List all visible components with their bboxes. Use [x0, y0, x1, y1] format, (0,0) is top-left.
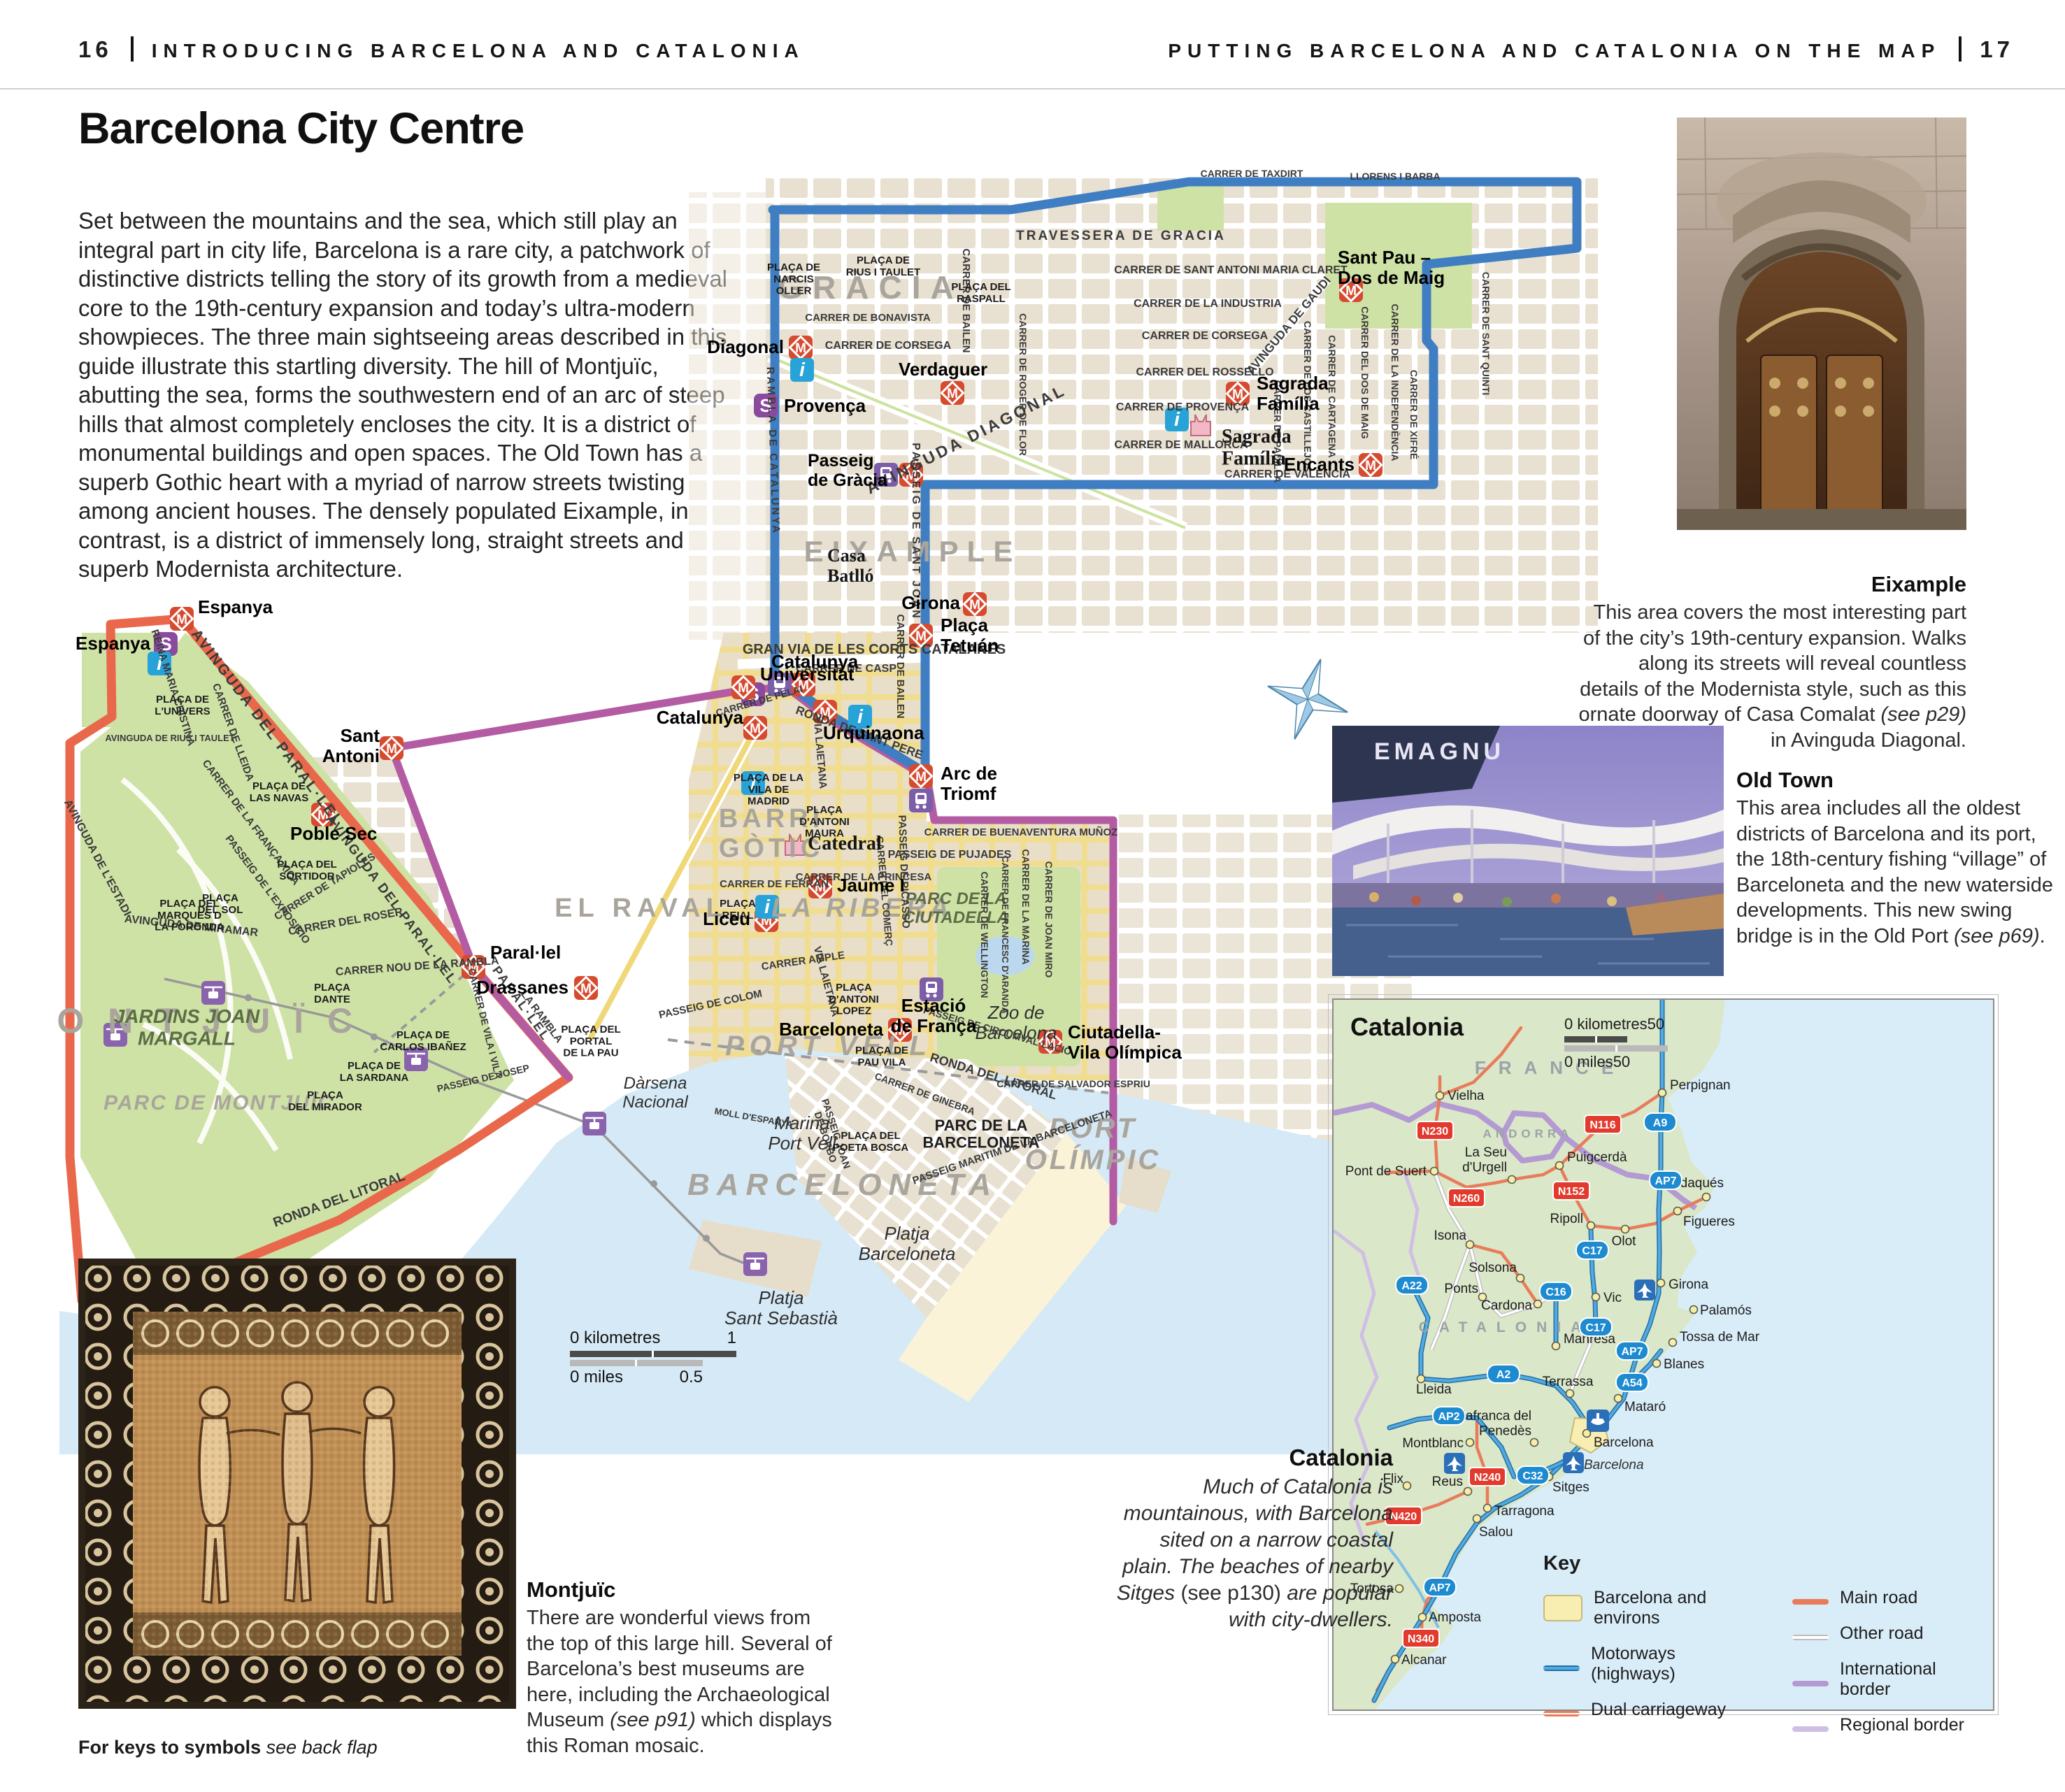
map-label: Puigcerdà	[1567, 1150, 1627, 1165]
road-shield: N240	[1469, 1468, 1506, 1486]
header-divider	[1959, 36, 1962, 62]
map-label: Espanya	[76, 633, 150, 654]
map-label: Tossa de Mar	[1680, 1330, 1760, 1345]
map-label: CARRER DE PROVENÇA	[1116, 401, 1250, 413]
city-map-scale: 0 kilometres1 0 miles0.5	[570, 1328, 736, 1387]
city-dot	[1419, 1614, 1427, 1621]
small-park	[1157, 185, 1224, 231]
map-label: Drassanes	[476, 977, 569, 998]
metro-icon	[170, 607, 194, 631]
page-number-left: 16	[78, 36, 113, 62]
catalonia-map-title: Catalonia	[1350, 1012, 1464, 1042]
city-dot	[1552, 1342, 1560, 1350]
map-label: CARRER DE SANT ANTONI MARIA CLARET	[1114, 264, 1348, 276]
header-title-left: INTRODUCING BARCELONA AND CATALONIA	[152, 40, 805, 62]
map-label: Olot	[1612, 1234, 1637, 1249]
map-label: CARRER DE XIFRÉ	[1408, 370, 1420, 459]
map-label: Provença	[784, 395, 866, 416]
cable-icon	[583, 1112, 606, 1135]
cat-scale-km-val: 50	[1648, 1015, 1664, 1033]
svg-text:A22: A22	[1401, 1280, 1422, 1292]
key-label: Regional border	[1840, 1715, 1964, 1735]
map-label: Girona	[901, 592, 960, 613]
key-swatch	[1792, 1681, 1829, 1686]
map-label: CARRER DE BONAVISTA	[805, 312, 931, 324]
metro-icon	[574, 976, 598, 1000]
page-title: Barcelona City Centre	[78, 103, 524, 154]
svg-text:C16: C16	[1545, 1286, 1566, 1298]
city-dot	[1674, 1207, 1682, 1215]
montjuic-heading: Montjuïc	[527, 1577, 834, 1603]
city-dot	[1659, 1089, 1666, 1097]
catalonia-caption: Catalonia Much of Catalonia is mountaino…	[1110, 1445, 1393, 1633]
page-header-right: PUTTING BARCELONA AND CATALONIA ON THE M…	[1168, 36, 2014, 67]
map-label: Diagonal	[707, 336, 784, 357]
map-label: Liceu	[703, 908, 750, 929]
old-town-photo: EMAGNU	[1332, 726, 1724, 976]
catalonia-scale: 0 kilometres50 0 miles50	[1564, 1015, 1669, 1071]
header-title-right: PUTTING BARCELONA AND CATALONIA ON THE M…	[1168, 40, 1941, 62]
map-label: Montblanc	[1402, 1436, 1464, 1451]
metro-icon	[909, 764, 933, 788]
old-town-page-ref: (see p69)	[1954, 925, 2040, 947]
scale-km-label: 0 kilometres	[570, 1328, 660, 1348]
key-title: Key	[1543, 1552, 1980, 1575]
map-label: CARRER DE FERRAN	[720, 878, 829, 890]
svg-text:C17: C17	[1585, 1322, 1606, 1334]
city-dot	[1417, 1375, 1425, 1383]
svg-text:N116: N116	[1589, 1119, 1615, 1131]
road-shield: N152	[1553, 1182, 1589, 1200]
map-label: Alcanar	[1401, 1653, 1447, 1668]
city-dot	[1587, 1222, 1595, 1230]
road-shield: AP2	[1433, 1407, 1465, 1425]
map-label: Isona	[1434, 1228, 1467, 1243]
road-shield: C16	[1540, 1282, 1572, 1300]
road-shield: A54	[1616, 1373, 1648, 1391]
map-label: CARRER DEL DOS DE MAIG	[1359, 306, 1371, 439]
airport-icon	[1634, 1280, 1655, 1300]
map-label: CARRER DE LA INDUSTRIA	[1134, 298, 1282, 310]
scale-mi-value: 0.5	[680, 1368, 703, 1387]
catalonia-map: FRANCEANDORRACATALONIAVielhaPont de Suer…	[1332, 998, 1994, 1711]
road-shield: C17	[1580, 1318, 1612, 1336]
maremagnum-sign: EMAGNU	[1374, 738, 1505, 765]
map-label: Sitges	[1552, 1480, 1589, 1495]
city-dot	[1690, 1306, 1698, 1314]
metro-icon	[380, 736, 403, 760]
key-swatch	[1792, 1599, 1829, 1605]
city-dot	[1436, 1092, 1444, 1100]
map-key: Key Barcelona and environsMotorways (hig…	[1543, 1552, 1980, 1735]
city-dot	[1392, 1656, 1399, 1663]
key-swatch	[1543, 1711, 1580, 1716]
cat-scale-mi: 0 miles	[1564, 1053, 1613, 1070]
header-rule	[0, 88, 2065, 89]
svg-text:AP2: AP2	[1438, 1411, 1459, 1423]
catalonia-heading: Catalonia	[1110, 1445, 1393, 1471]
road-shield: N230	[1417, 1121, 1453, 1140]
map-label: PLAÇA DEL'UNIVERS	[155, 694, 210, 717]
svg-text:N152: N152	[1558, 1186, 1585, 1198]
city-dot	[1484, 1505, 1492, 1512]
header-divider	[131, 36, 134, 62]
road-shield: N116	[1585, 1115, 1621, 1133]
map-label: Vic	[1603, 1291, 1622, 1305]
city-dot	[1615, 1395, 1622, 1403]
airport-icon	[1563, 1452, 1584, 1473]
map-label: La Seud'Urgell	[1462, 1145, 1507, 1175]
city-dot	[1534, 1300, 1542, 1308]
map-label: Lleida	[1416, 1382, 1452, 1397]
road-shield: N260	[1448, 1189, 1485, 1207]
map-label: CARRER DE ROGER DE FLOR	[1017, 313, 1029, 456]
key-swatch	[1543, 1665, 1580, 1671]
cat-scale-mi-val: 50	[1613, 1053, 1630, 1070]
city-dot	[1657, 1280, 1665, 1287]
eixample-doorway-photo	[1677, 117, 1966, 530]
map-label: Paral·lel	[490, 942, 561, 963]
map-label: Ponts	[1444, 1282, 1478, 1296]
city-dot	[1517, 1275, 1524, 1282]
map-label: CARRER DE LA INDEPENDÈNCIA	[1389, 303, 1401, 461]
road-shield: C17	[1576, 1241, 1608, 1259]
svg-text:C17: C17	[1582, 1245, 1602, 1257]
key-item: Other road	[1792, 1623, 1980, 1644]
map-label: PLAÇA DELA SARDANA	[340, 1060, 409, 1084]
svg-text:AP7: AP7	[1429, 1582, 1450, 1594]
map-label: Perpignan	[1670, 1078, 1731, 1093]
key-label: Dual carriageway	[1591, 1700, 1726, 1720]
map-label: Girona	[1669, 1277, 1708, 1292]
map-label: PLAÇA DELPORTALDE LA PAU	[561, 1024, 620, 1059]
map-label: CARRER DE BUENAVENTURA MUÑOZ	[924, 826, 1118, 838]
footer-note: For keys to symbols see back flap	[78, 1737, 378, 1758]
map-label: PLAÇA DELSORTIDOR	[277, 859, 336, 882]
svg-text:N340: N340	[1408, 1633, 1434, 1645]
scale-mi-label: 0 miles	[570, 1368, 623, 1387]
road-shield: C32	[1517, 1466, 1549, 1484]
map-label: ANDORRA	[1483, 1127, 1573, 1140]
book-page: 16INTRODUCING BARCELONA AND CATALONIA PU…	[0, 0, 2065, 1792]
montjuic-page-ref: (see p91)	[610, 1709, 696, 1731]
map-label: PLAÇADEL SOL	[198, 892, 243, 916]
key-swatch	[1792, 1726, 1829, 1732]
map-label: EL RAVAL	[555, 894, 728, 923]
train-icon	[909, 789, 933, 812]
key-column-left: Barcelona and environsMotorways (highway…	[1543, 1588, 1764, 1735]
key-swatch	[1792, 1635, 1829, 1640]
city-dot	[1508, 1176, 1516, 1184]
svg-text:C32: C32	[1522, 1470, 1543, 1482]
svg-text:AP7: AP7	[1621, 1346, 1643, 1358]
map-label: CARRER DE CORSEGA	[1142, 330, 1269, 342]
key-item: International border	[1792, 1659, 1980, 1700]
map-label: Pont de Suert	[1345, 1164, 1427, 1179]
map-label: PLAÇA DELRASPALL	[951, 281, 1010, 305]
city-dot	[1431, 1168, 1438, 1175]
map-label: Cardona	[1481, 1298, 1532, 1313]
map-label: PLAÇA DERIUS I TAULET	[846, 255, 920, 278]
cable-icon	[743, 1252, 767, 1276]
key-item: Motorways (highways)	[1543, 1644, 1764, 1684]
montjuic-mosaic-photo	[78, 1259, 516, 1709]
svg-text:N240: N240	[1474, 1472, 1501, 1484]
key-item: Main road	[1792, 1588, 1980, 1608]
map-label: AVINGUDA DE RIUS I TAULET	[105, 733, 234, 743]
key-item: Dual carriageway	[1543, 1700, 1764, 1720]
metro-icon	[743, 716, 767, 740]
road-shield: A2	[1487, 1365, 1520, 1383]
map-label: CARRER DE CARTAGENA	[1327, 335, 1338, 458]
key-label: International border	[1840, 1659, 1980, 1700]
map-label: CARRER DE WELLINGTON	[979, 872, 990, 998]
svg-text:A9: A9	[1653, 1117, 1668, 1129]
map-label: SagradaFamília	[1257, 373, 1329, 414]
ferry-icon	[1587, 1410, 1609, 1432]
key-swatch	[1543, 1595, 1582, 1621]
map-label: PLAÇADANTE	[314, 982, 350, 1005]
svg-text:N420: N420	[1390, 1511, 1417, 1523]
old-town-caption: Old Town This area includes all the olde…	[1736, 768, 2059, 949]
map-label: Universitat	[760, 664, 855, 684]
map-label: CARRER DE TAXDIRT	[1201, 168, 1303, 179]
map-label: Estacióde França	[891, 995, 977, 1036]
key-column-right: Main roadOther roadInternational borderR…	[1792, 1588, 1980, 1735]
map-label: CARRER DE BAILEN	[894, 614, 906, 718]
city-dot	[1592, 1293, 1600, 1301]
svg-text:AP7: AP7	[1655, 1175, 1676, 1187]
eixample-page-ref: (see p29)	[1880, 703, 1966, 726]
city-dot	[1466, 1241, 1474, 1249]
map-label: CARRER DE SALVADOR ESPRIU	[996, 1078, 1150, 1089]
map-label: Figueres	[1683, 1214, 1735, 1229]
map-label: CARRER DE CORSEGA	[825, 340, 952, 352]
map-label: Barceloneta	[779, 1019, 883, 1040]
airport-icon	[1444, 1453, 1465, 1474]
metro-icon	[963, 592, 987, 616]
map-label: Vielha	[1448, 1089, 1485, 1103]
scale-km-value: 1	[727, 1328, 736, 1348]
city-dot	[1396, 1585, 1403, 1593]
city-dot	[1473, 1515, 1481, 1523]
map-label: Blanes	[1664, 1357, 1704, 1372]
city-dot	[1669, 1339, 1677, 1347]
page-number-right: 17	[1980, 36, 2014, 62]
map-label: Tarragona	[1494, 1504, 1555, 1519]
road-shield: N340	[1403, 1629, 1439, 1647]
city-dot	[1703, 1194, 1710, 1201]
metro-icon	[789, 336, 813, 359]
map-label: Jaume I	[837, 875, 905, 896]
city-dot	[1466, 1439, 1474, 1447]
city-dot	[1464, 1488, 1472, 1496]
map-label: Ripoll	[1550, 1212, 1583, 1226]
map-label: Espanya	[198, 596, 273, 617]
map-label: Amposta	[1429, 1610, 1481, 1625]
key-label: Main road	[1840, 1588, 1917, 1608]
map-label: Verdaguer	[899, 359, 987, 380]
key-label: Barcelona and environs	[1594, 1588, 1764, 1628]
map-label: Barcelona	[1584, 1458, 1644, 1472]
map-label: DàrsenaNacional	[622, 1074, 688, 1112]
montjuic-caption: Montjuïc There are wonderful views from …	[527, 1577, 834, 1758]
map-label: CARRER DE LA MARINA	[1020, 849, 1031, 964]
cat-scale-km: 0 kilometres	[1564, 1015, 1648, 1033]
map-label: CARRER DE JOAN MIRO	[1043, 861, 1055, 978]
map-label: Barcelona	[1594, 1435, 1654, 1450]
city-dot	[1622, 1226, 1629, 1233]
footer-italic: see back flap	[261, 1737, 378, 1758]
map-label: Solsona	[1469, 1261, 1517, 1275]
city-dot	[1403, 1482, 1411, 1490]
map-label: Reus	[1432, 1475, 1463, 1489]
map-label: Encants	[1284, 454, 1355, 475]
map-label: SagradaFamília	[1222, 426, 1292, 469]
map-label: Sant Pau –Dos de Maig	[1338, 247, 1445, 288]
map-label: Salou	[1479, 1525, 1513, 1540]
road-shield: AP7	[1650, 1171, 1682, 1189]
road-shield: AP7	[1424, 1578, 1456, 1596]
city-dot	[1653, 1360, 1661, 1368]
map-label: SantAntoni	[322, 725, 380, 766]
svg-text:A54: A54	[1622, 1377, 1642, 1389]
page-header-left: 16INTRODUCING BARCELONA AND CATALONIA	[78, 36, 805, 67]
city-dot	[1531, 1439, 1538, 1447]
key-label: Motorways (highways)	[1591, 1644, 1764, 1684]
map-label: PLAÇA DELPOETA BOSCA	[833, 1130, 909, 1154]
eixample-text-end: in Avinguda Diagonal.	[1771, 729, 1966, 752]
road-shield: AP7	[1616, 1342, 1648, 1360]
old-town-heading: Old Town	[1736, 768, 2059, 793]
city-dot	[1556, 1162, 1564, 1170]
map-label: Arc deTriomf	[941, 763, 997, 804]
svg-text:A2: A2	[1496, 1369, 1511, 1381]
svg-text:N260: N260	[1453, 1193, 1480, 1205]
map-label: Palamós	[1700, 1303, 1752, 1318]
city-dot	[1566, 1390, 1574, 1398]
key-item: Regional border	[1792, 1715, 1980, 1735]
map-label: Catalunya	[657, 707, 744, 728]
catalonia-page-ref: (see p130)	[1180, 1582, 1280, 1605]
map-label: Poble Sec	[290, 823, 377, 844]
metro-icon	[941, 381, 964, 405]
old-town-text-end: .	[2040, 925, 2045, 947]
info-icon	[790, 358, 814, 382]
map-label: Catedral	[808, 833, 882, 854]
map-label: PLAÇA DELAS NAVAS	[250, 780, 308, 804]
map-label: PLAÇA DEPAU VILA	[855, 1045, 908, 1068]
map-label: CARRER DE FRANCESC D'ARANDA	[1000, 856, 1010, 1014]
key-item: Barcelona and environs	[1543, 1588, 1764, 1628]
road-shield: A9	[1644, 1113, 1676, 1131]
map-label: TRAVESSERA DE GRACIA	[1016, 229, 1226, 243]
metro-icon	[1359, 453, 1382, 477]
eixample-heading: Eixample	[1575, 572, 1966, 597]
key-label: Other road	[1840, 1623, 1924, 1644]
metro-icon	[731, 675, 755, 699]
map-label: PARC DE LACIUTADELLA	[903, 889, 1009, 927]
map-label: LLORENS I BARBA	[1350, 171, 1440, 182]
map-label: CARRER DE SANT QUINTI	[1480, 272, 1492, 396]
svg-text:N230: N230	[1422, 1126, 1448, 1138]
footer-bold: For keys to symbols	[78, 1737, 261, 1758]
map-label: Urquinaona	[823, 722, 924, 743]
road-shield: A22	[1396, 1276, 1428, 1294]
map-label: Mataró	[1624, 1400, 1666, 1414]
map-label: Terrassa	[1543, 1375, 1594, 1389]
city-dot	[1583, 1430, 1591, 1438]
